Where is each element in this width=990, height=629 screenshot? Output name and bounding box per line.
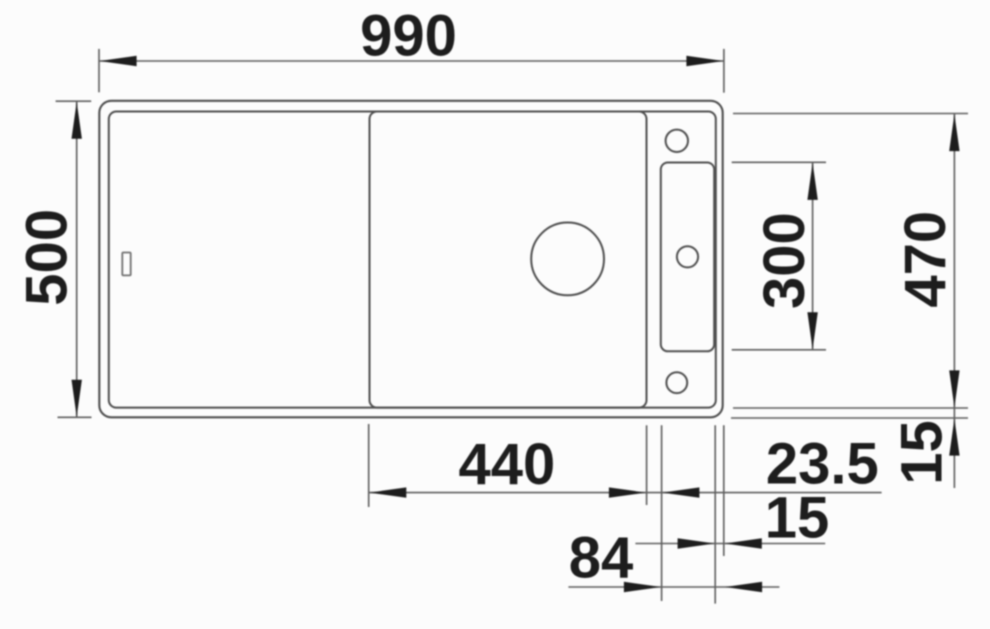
svg-text:990: 990 — [360, 4, 457, 69]
svg-text:470: 470 — [893, 211, 958, 308]
svg-text:84: 84 — [569, 526, 634, 591]
svg-text:500: 500 — [14, 209, 79, 306]
svg-text:440: 440 — [459, 432, 556, 497]
svg-text:15: 15 — [889, 420, 954, 485]
svg-text:15: 15 — [765, 486, 830, 551]
svg-text:300: 300 — [752, 212, 817, 309]
